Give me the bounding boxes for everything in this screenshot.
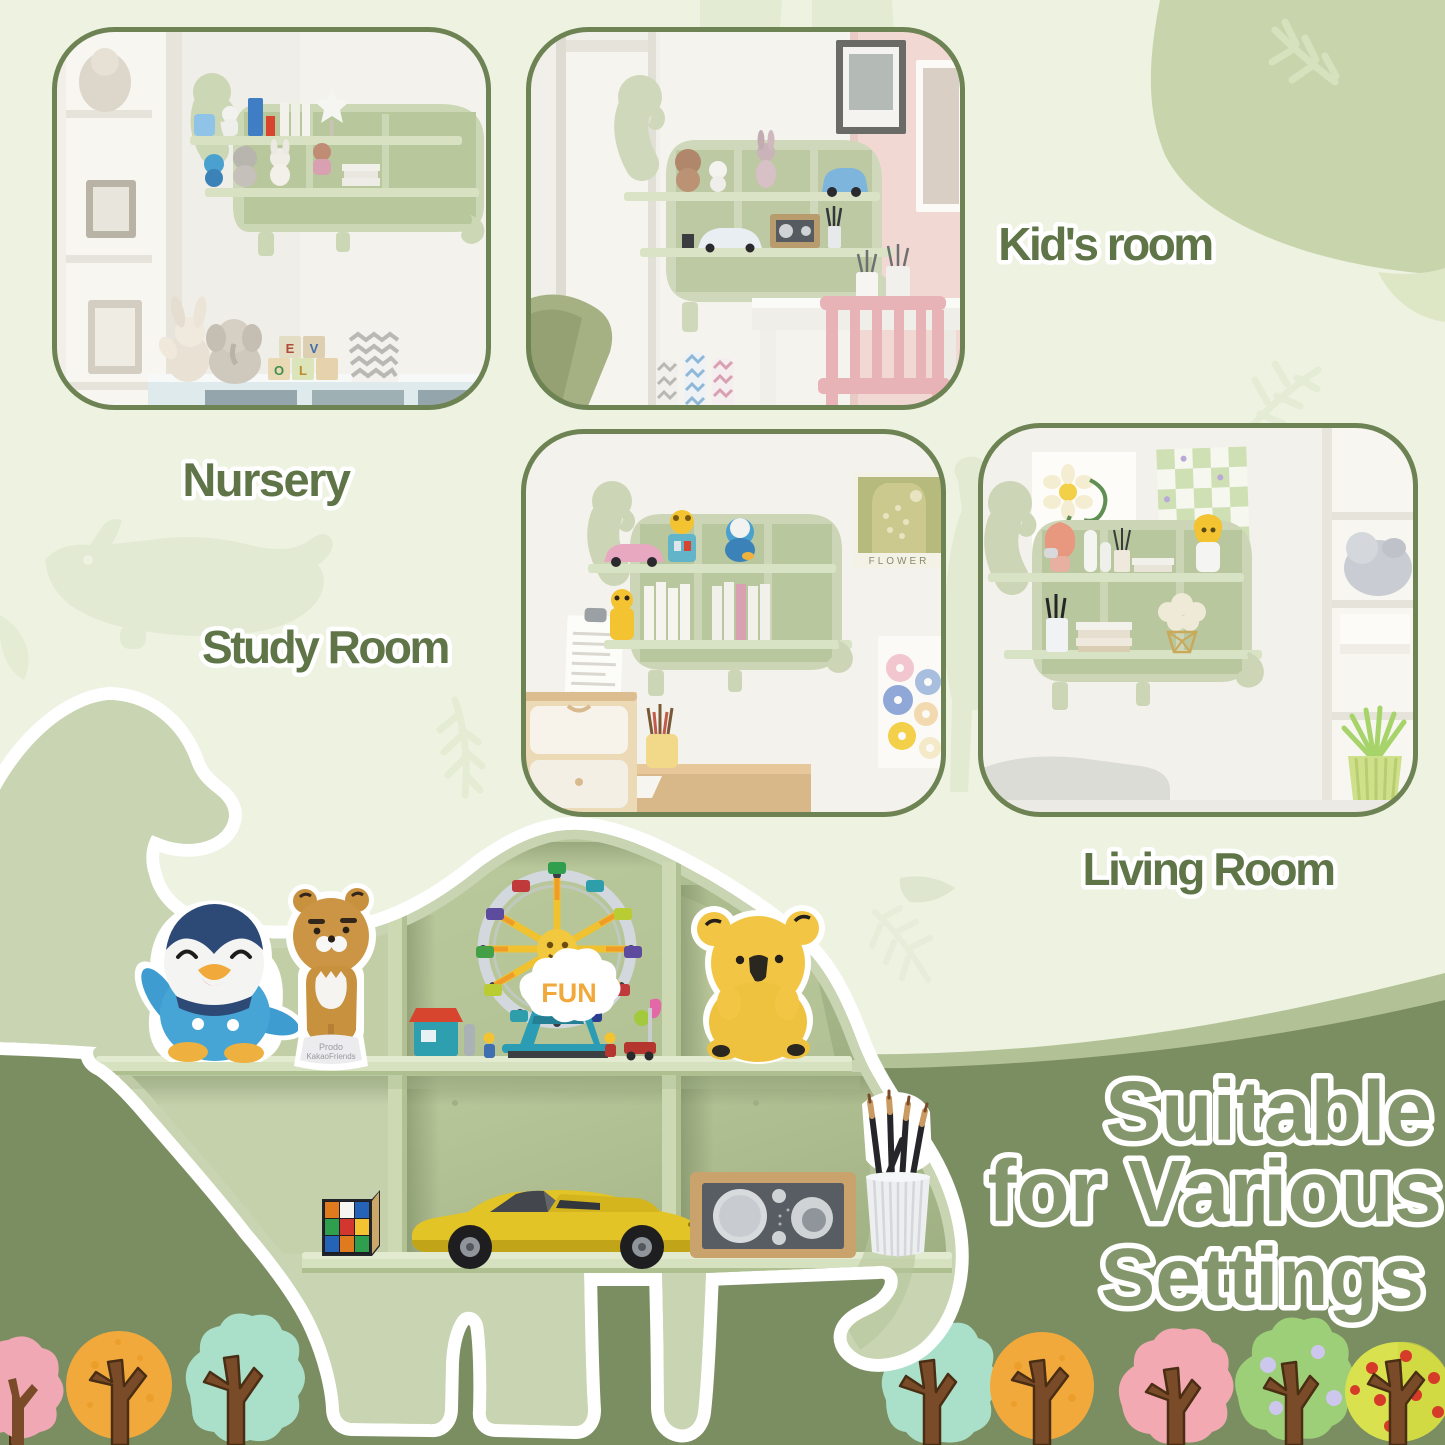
- svg-text:L: L: [299, 363, 307, 378]
- svg-text:E: E: [286, 341, 295, 356]
- svg-text:Kid's room: Kid's room: [998, 218, 1212, 270]
- svg-text:Prodo: Prodo: [319, 1042, 343, 1052]
- svg-text:Nursery: Nursery: [182, 453, 351, 506]
- svg-text:O: O: [274, 363, 284, 378]
- svg-text:V: V: [310, 341, 319, 356]
- svg-text:Settings: Settings: [1101, 1232, 1424, 1323]
- svg-text:FUN: FUN: [541, 978, 597, 1008]
- svg-text:FLOWER: FLOWER: [869, 556, 930, 567]
- svg-text:Study Room: Study Room: [202, 621, 448, 673]
- svg-text:Living Room: Living Room: [1082, 843, 1334, 895]
- svg-text:KakaoFriends: KakaoFriends: [306, 1052, 355, 1061]
- svg-text:for Various: for Various: [988, 1143, 1442, 1240]
